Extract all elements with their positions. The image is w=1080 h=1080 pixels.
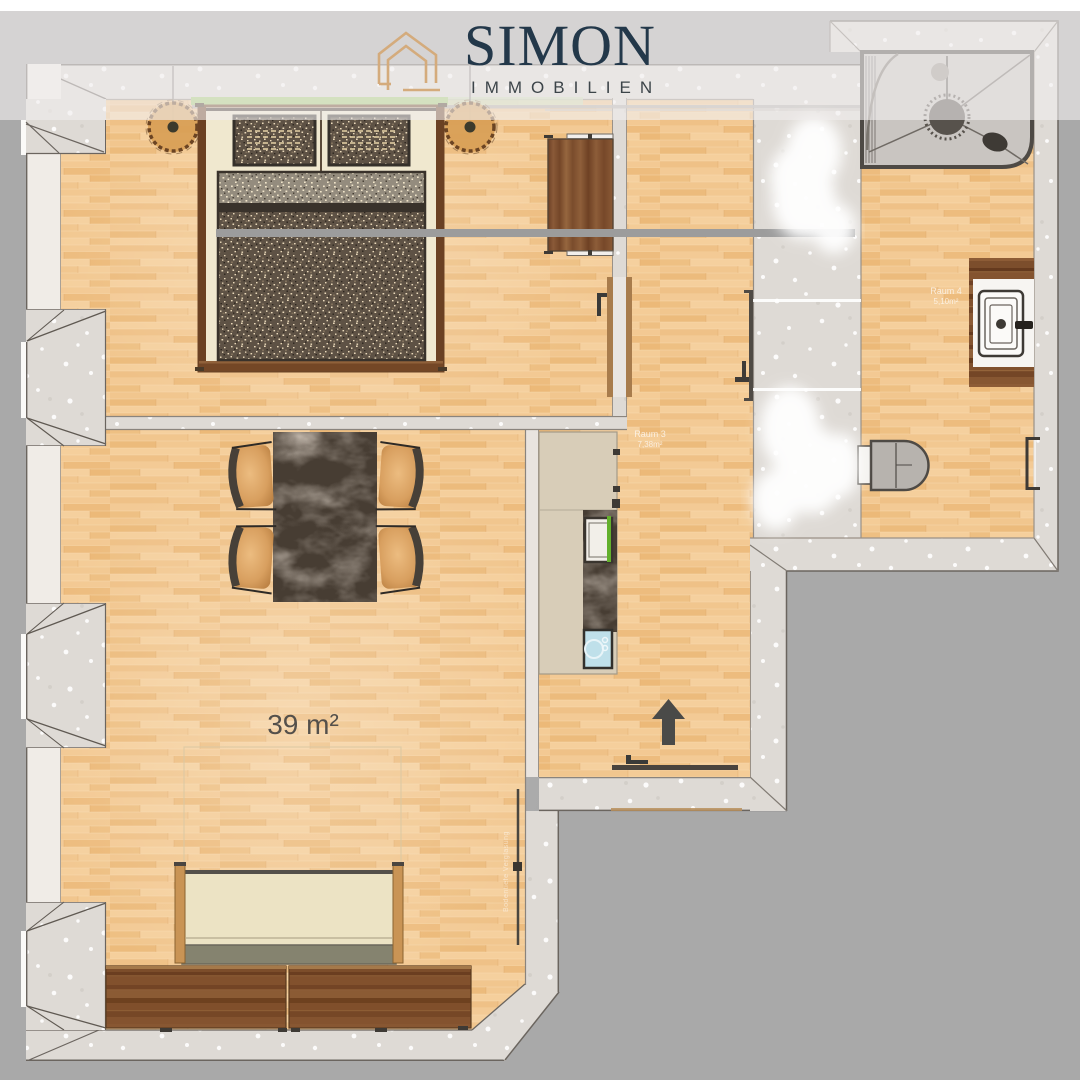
svg-text:5,10m²: 5,10m² [934,297,959,306]
svg-text:39 m²: 39 m² [267,709,339,740]
svg-text:Raum 3: Raum 3 [634,429,666,439]
svg-text:Raum 4: Raum 4 [930,286,962,296]
svg-text:Bodentiefe Verglasung: Bodentiefe Verglasung [503,831,510,912]
svg-text:7,38m²: 7,38m² [638,440,663,449]
